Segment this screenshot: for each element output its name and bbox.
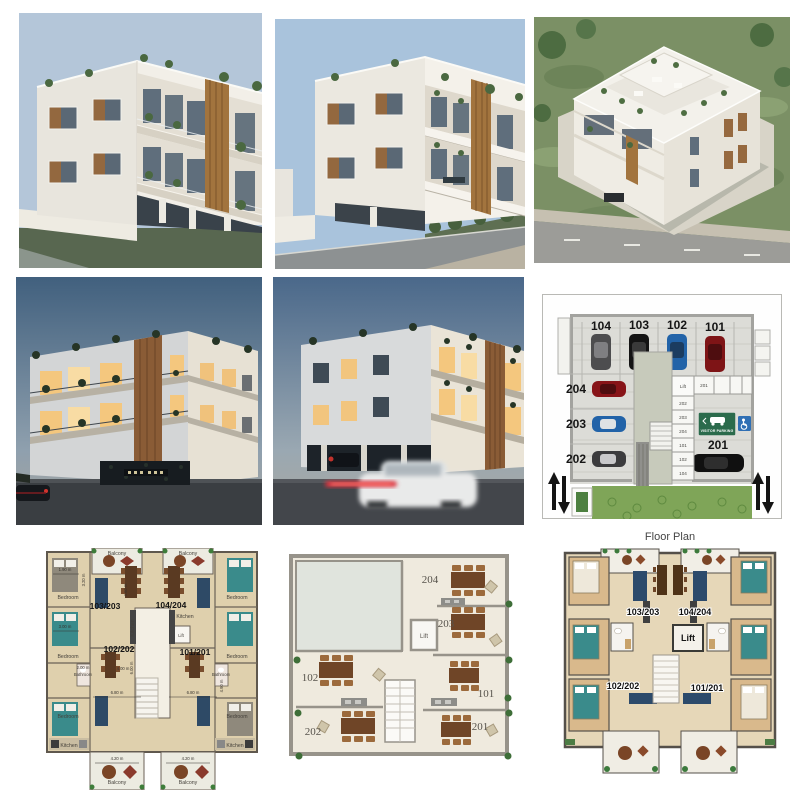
floor-plan-dimensioned[interactable]: Lift [35,548,270,790]
unit-103-203: 103/203 [90,601,121,611]
entrance-stone-wall [100,461,190,485]
bedroom-label: Bedroom [226,595,247,601]
room-201: 201 [472,721,489,733]
room-202: 202 [305,726,322,738]
visitor-parking-sign: VISITOR PARKING [698,412,736,436]
lift-label: Lift [680,384,687,389]
storage-label: 102 [679,457,687,462]
spot-101-label: 101 [705,320,725,334]
open-room [296,561,402,651]
spot-202-label: 202 [566,452,586,466]
spot-104-label: 104 [591,319,611,333]
parked-car [329,453,359,467]
photo-exterior-night-corner[interactable] [16,277,262,525]
balcony-label: Balcony [108,780,127,786]
boundary-wall [275,215,315,243]
floor-plan-colored[interactable]: Floor Plan [545,527,795,795]
landscaping [572,486,752,519]
balcony-label: Balcony [108,551,127,557]
balcony-label: Balcony [179,780,198,786]
unit-101-201: 101/201 [180,647,211,657]
storage-label: 202 [679,401,687,406]
dim-label: 3.00 m [59,624,72,629]
stairs [385,680,415,742]
wood-slat-accent [205,79,229,213]
storage-column: 202 203 204 101 102 104 [672,396,694,480]
room-204: 204 [422,574,439,586]
lift-label: Lift [681,633,695,643]
spot-103-label: 103 [629,318,649,332]
lift-label: Lift [420,634,428,640]
wood-slat-accent [471,79,491,215]
kitchen-label: Kitchen [226,743,243,749]
lift: Lift [411,620,437,650]
dim-label: 3.20 m [81,573,86,586]
dim-label: 4.60 m [123,583,128,596]
spot-203: 203 [566,416,626,432]
bedroom-label: Bedroom [226,714,247,720]
lift: Lift [673,625,703,651]
side-room [558,318,570,374]
accessible-parking-icon [738,416,751,431]
visitor-parking-label: VISITOR PARKING [701,429,734,433]
wood-slat-accent [134,335,162,483]
spot-101: 101 [705,320,725,372]
storage-top-row: 201 [694,376,752,394]
building [301,323,524,473]
storage-label: 101 [679,443,687,448]
floor-plan-simple[interactable]: Lift [283,550,515,762]
stairs [653,655,679,703]
stairs [136,678,158,718]
road [16,483,262,525]
bathroom-label: Bathroom [212,672,231,677]
unit-102-202: 102/202 [607,681,640,691]
stairs [650,422,674,450]
passing-car [16,485,50,501]
spot-204-label: 204 [566,382,586,396]
wood-slat-accent [485,340,505,470]
unit-101-201: 101/201 [691,683,724,693]
unit-104-204: 104/204 [679,607,712,617]
photo-exterior-aerial[interactable] [534,17,790,263]
lift-cell: Lift [672,376,694,396]
car-icon [710,417,725,423]
pier [370,207,377,227]
storage-label: 104 [679,471,687,476]
lift-label: Lift [178,633,184,638]
dim-label: 6.80 m [111,690,124,695]
storage-right-cells [755,330,770,376]
floor-plan-title: Floor Plan [645,531,695,543]
parked-car [604,193,624,202]
room-102: 102 [302,672,319,684]
dim-label: 1.90 m [59,567,72,572]
name-plaque [443,177,465,183]
dim-label: 4.00 m [117,666,130,671]
unit-104-204: 104/204 [156,600,187,610]
spot-202: 202 [566,451,626,467]
storage-label: 204 [679,429,687,434]
kitchen-label: Kitchen [176,614,193,620]
bedroom-label: Bedroom [57,714,78,720]
room-101: 101 [478,688,495,700]
dim-label: 6.80 m [187,690,200,695]
balcony-label: Balcony [179,551,198,557]
kitchen-label: Kitchen [130,619,136,636]
bedroom-label: Bedroom [57,595,78,601]
parking-plan[interactable]: 104 103 102 101 204 [542,294,782,519]
kitchen-label: Kitchen [60,743,77,749]
unit-102-202: 102/202 [104,644,135,654]
spot-201-label: 201 [708,438,728,452]
storage-201-label: 201 [700,383,708,388]
room-203: 203 [438,618,455,630]
spot-203-label: 203 [566,417,586,431]
dim-label: 2.00 m [77,665,90,670]
dim-label: 4.20 m [182,756,195,761]
building [315,57,525,231]
dim-label: 4.20 m [111,756,124,761]
bedroom-label: Bedroom [226,654,247,660]
storage-label: 203 [679,415,687,420]
photo-exterior-night-street[interactable] [273,277,524,525]
spot-102-label: 102 [667,318,687,332]
bathroom-label: Bathroom [74,672,93,677]
spot-104: 104 [591,319,611,370]
dim-label: 6.00 m [129,661,134,674]
spot-204: 204 [566,381,626,397]
property-gallery-grid: 104 103 102 101 204 [0,0,800,800]
unit-103-203: 103/203 [627,607,660,617]
bedroom-label: Bedroom [57,654,78,660]
photo-exterior-day-corner[interactable] [19,13,262,268]
dim-label: 4.90 m [219,679,224,692]
photo-exterior-day-street[interactable] [275,19,525,269]
